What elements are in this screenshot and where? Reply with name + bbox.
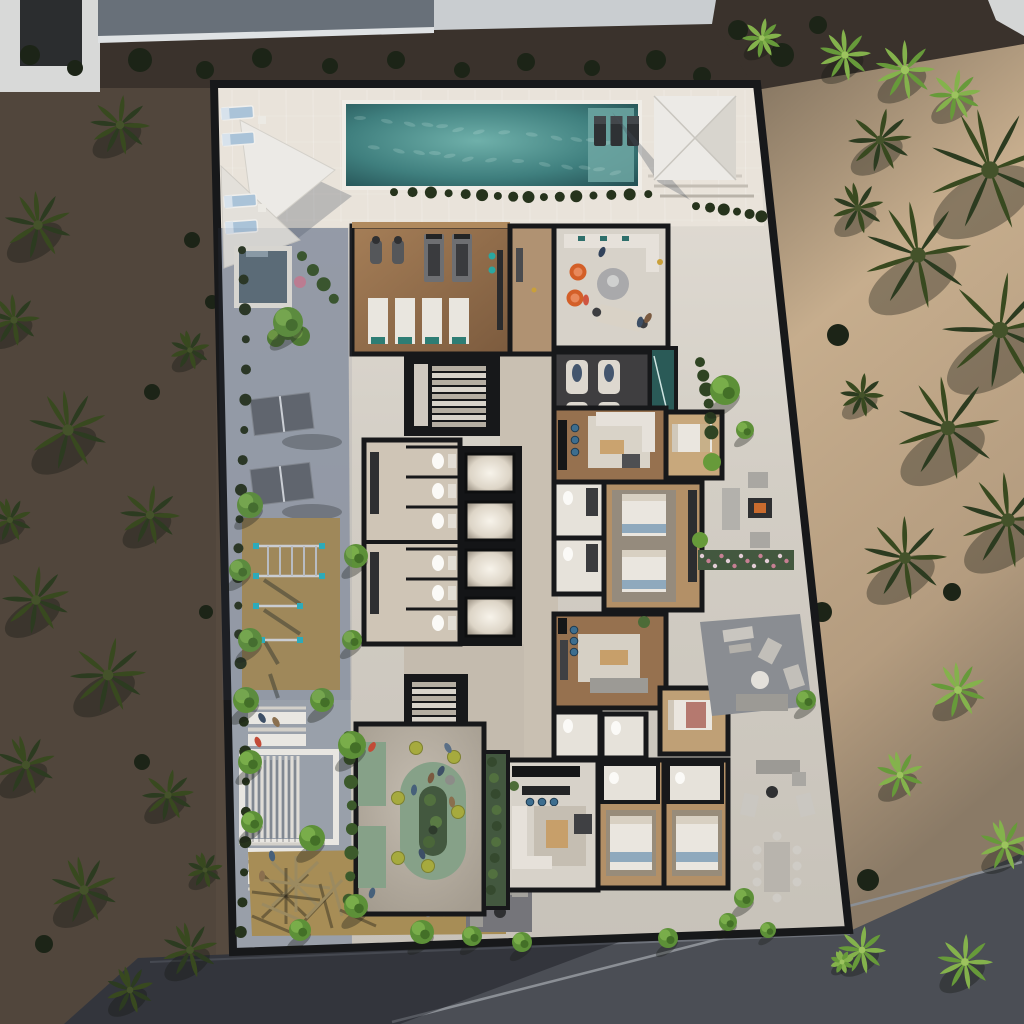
tree-shade-side [354,554,364,564]
flower [765,559,769,563]
corridor-upper [500,350,558,448]
tree-shade-side [667,936,675,944]
bed-headboard [610,816,652,824]
cushion [600,236,607,241]
elevator-car [466,454,514,492]
flower [732,564,736,568]
hedge-shrub [461,189,471,199]
palm-crown [7,517,13,523]
apt1-armchair [622,454,640,468]
palm-crown [186,946,194,954]
outdoor-sofa [722,488,740,530]
bush [134,754,150,770]
hedge-shrub [408,187,418,197]
fire-glow [754,503,766,513]
mat-block [425,337,439,344]
mirror-wall [497,250,503,330]
apt3-coffee-table [546,820,568,848]
palm-crown [187,347,193,353]
tree-shade-side [744,428,751,435]
palm-crown [1001,841,1008,848]
palm-crown [981,161,998,178]
lounger-headrest [224,195,233,208]
mat-block [398,337,412,344]
person-on-recliner [572,364,582,382]
toilet [432,585,444,601]
palm-crown [910,247,925,262]
dining-chair [753,878,762,887]
bar-stool [571,424,579,432]
lounger-backrest [594,116,606,124]
paved-lounge-terrace [700,614,812,716]
bar-stool [571,448,579,456]
bush [517,53,535,71]
bed-twin-2 [622,550,666,592]
hedge-shrub [508,192,518,202]
lounger-headrest [221,107,230,120]
hedge-shrub [555,192,565,202]
planting-tuft [424,794,436,806]
bush [809,16,827,34]
tree-shade-side [250,820,259,829]
floor-lamp [657,259,663,265]
flower [771,564,775,568]
side-table [258,116,266,124]
stair-step [432,366,486,371]
bed-headboard [676,816,718,824]
toilet [611,721,621,735]
planter [489,267,496,274]
hedge-shrub [692,202,700,210]
bed-twin-1 [622,494,666,536]
bar-stool [538,798,546,806]
apt1-kitchen-stools [571,424,579,456]
elevator-car [466,598,514,636]
ambient-shade-west [218,228,352,700]
stair-core-a [404,356,500,436]
bench [516,248,523,282]
shrub-tuft [492,821,502,831]
palm-crown [992,322,1008,338]
hedge-shrub [425,187,437,199]
toilet [563,491,573,505]
toilet [432,555,444,571]
bush [67,60,83,76]
apt3-sofa [512,806,527,862]
person-on-recliner [604,364,614,382]
palm-crown [31,595,41,605]
shrub-tuft [486,885,496,895]
bed-headboard [622,550,666,557]
palm-crown [941,421,956,436]
stair-step [432,387,486,392]
hedge-shrub [705,203,715,213]
lime-pouf [392,852,405,865]
apartment-upper [554,408,722,610]
apt2-sofa [590,678,648,693]
palm-crown [127,987,134,994]
lime-pouf [392,792,405,805]
suite-1 [598,760,664,888]
palm-crown [22,761,30,769]
palm-crown [951,91,958,98]
bed-headboard [622,494,666,501]
toilet [432,615,444,631]
palm-crown [116,121,124,129]
bed-headboard [672,424,678,452]
palm-crown [10,316,17,323]
tree-shade-side [723,387,735,399]
stair-step [432,394,486,399]
tree-shade-side [354,904,364,914]
apt3-kitchen-stools [526,798,558,806]
bathroom-d [602,714,646,758]
palm-crown [202,867,207,872]
lime-pouf [422,860,435,873]
potted-palm [703,453,721,471]
dining-chair [773,832,782,841]
table-plant [607,275,619,287]
shower [586,488,598,516]
orange-chair-seat [571,294,580,303]
apt3-armchair [574,814,592,834]
elevator-car [466,502,514,540]
stair-steps [432,366,486,427]
person [583,295,589,306]
palm-crown [79,885,89,895]
hedge-shrub [624,188,636,200]
bush [35,935,53,953]
planting-tuft [423,836,435,848]
palm-crown [62,424,73,435]
shrub-tuft [491,837,501,847]
bush [184,232,200,248]
coffee-table [766,786,778,798]
outdoor-armchair [748,472,768,488]
bed-runner [610,852,652,862]
bush [943,583,961,601]
toilet [609,772,619,784]
bike-console [394,236,402,244]
shrub-tuft [487,757,497,767]
flower [739,554,743,558]
bathroom-c [554,712,600,758]
hedge-shrub [445,189,453,197]
water-sparkle [354,116,366,120]
potted-palm [692,532,708,548]
palm-crown [146,511,154,519]
bed-runner [622,580,666,589]
suite1-bath [602,764,658,802]
tree-shade-side [420,930,430,940]
hedge-shrub [695,357,705,367]
hedge-shrub [755,210,767,222]
toilet [563,547,573,561]
palm-crown [897,772,904,779]
lime-pouf [452,806,465,819]
palm-crown [961,958,969,966]
cushion [578,236,585,241]
toilet [675,772,685,784]
hedge-shrub [697,370,709,382]
apt2-coffee-table [600,650,628,665]
bike-console [372,236,380,244]
mat-block [452,337,466,344]
hedge-shrub [522,191,534,203]
suite-2 [664,760,728,888]
palm-crown [899,552,911,564]
hedge-shrub [745,209,755,219]
apt2-tv-unit [560,640,568,680]
stair-step [412,710,456,715]
outdoor-sofa [756,760,800,774]
bar-stool [570,626,578,634]
tree-shade-side [248,760,258,770]
cushion [622,236,629,241]
cistern [448,454,456,468]
bed-rose [668,700,712,730]
palm-crown [33,220,43,230]
stair-step [432,422,486,427]
dining-chair [793,862,802,871]
cistern [448,586,456,600]
hedge-shrub [733,208,741,216]
dining-chair [773,894,782,903]
tree-shade-side [767,928,773,934]
tree-shade-side [310,835,320,845]
bush [144,384,160,400]
lounger-backrest [627,116,639,124]
shrub-tuft [491,789,501,799]
flower [745,559,749,563]
palm-crown [1001,513,1014,526]
bush [857,869,879,891]
lime-pouf [410,742,423,755]
apt1-coffee-table [600,440,624,454]
hedge-shrub [704,425,718,439]
orange-chair-seat [574,268,583,277]
palm-crown [103,670,114,681]
bar-stool [526,798,534,806]
bush [584,60,600,76]
palm-crown [759,35,765,41]
dining-table [764,842,790,892]
apt3-kitchen-counter [512,766,580,777]
hedge-shrub [570,190,582,202]
tree-shade-side [471,934,479,942]
palm-crown [954,686,962,694]
toilet [432,513,444,529]
changing-rooms [364,440,460,644]
elevator-bank [458,446,522,646]
apt2-kitchen-counter [558,618,567,634]
bar-stool [550,798,558,806]
cistern [448,484,456,498]
stair-step [412,696,456,701]
tree-shade-side [298,928,307,937]
bed-runner [676,852,718,862]
flower [706,559,710,563]
gray-pouf [445,775,455,785]
palm-crown [854,204,861,211]
planter [489,253,496,260]
sun-lounger [224,194,257,208]
stair-step [412,717,456,722]
dining-chair [793,878,802,887]
shrub-tuft [490,853,500,863]
cistern [448,556,456,570]
tree-shade-side [743,896,751,904]
elevator-car [466,550,514,588]
outdoor-armchair [792,772,806,786]
vanity-counter [370,452,379,514]
palm-crown [859,947,866,954]
apt1-sofa-chaise [642,412,655,452]
stair-step [412,682,456,687]
outdoor-sofa [736,694,788,711]
outdoor-armchair [750,532,770,548]
bar-stool [570,637,578,645]
hedge-shrub [347,800,357,810]
treadmill-belt [456,244,468,276]
dark-pouf [429,826,438,835]
toilet [432,483,444,499]
cistern [448,616,456,630]
bed-headboard [668,700,674,730]
tree-shade-side [805,698,813,706]
palm-crown [840,960,845,965]
gym-top-beam [352,222,510,228]
flower [778,554,782,558]
palm-crown [859,392,865,398]
sage-bench-lower [358,826,386,888]
palm-crown [876,136,885,145]
cistern [448,514,456,528]
lounger-headrest [222,133,231,146]
hedge-shrub [606,190,616,200]
bed-throw [686,702,706,728]
aerial-render [0,0,1024,1024]
sun-lounger [221,106,254,120]
tree-shade-side [350,742,361,753]
lounge-sofa-arm [646,234,659,272]
stair-step [432,373,486,378]
treadmill-console [454,234,470,239]
hedge-shrub [237,897,247,907]
bush [128,48,152,72]
hedge-shrub [390,188,398,196]
hedge-shrub [235,926,247,938]
suite2-bath [668,764,722,802]
lobby-lounge [554,226,668,348]
sun-lounger [222,132,255,146]
hedge-shrub [494,192,502,200]
stair-step [432,401,486,406]
treadmill-console [426,234,442,239]
hedge-shrub [346,823,358,835]
hedge-shrub [345,871,355,881]
courtyard [356,724,484,914]
gym [352,222,510,354]
stair-step [432,415,486,420]
apartment-lower [506,760,728,890]
stair-landing [414,364,428,426]
dining-chair [753,846,762,855]
bush [454,62,470,78]
treadmill-belt [428,244,440,276]
palm-crown [841,51,848,58]
shrub-tuft [489,773,499,783]
apt3-island [522,786,570,795]
side-table [258,204,266,212]
palm-crown [901,66,909,74]
dining-chair [753,862,762,871]
vanity-counter [370,552,379,614]
bush [322,58,338,74]
apt3-sofa-corner [512,856,552,869]
bush [252,48,272,68]
tree-shade-side [727,920,734,927]
shower [586,544,598,572]
flower [726,559,730,563]
vestibule [510,226,554,354]
mat-block [371,337,385,344]
bush [827,324,849,346]
bush [20,45,40,65]
toilet [432,453,444,469]
hedge-shrub [344,846,358,860]
flower [752,564,756,568]
bar-stool [570,648,578,656]
stair-step [432,408,486,413]
apt1-kitchen-counter [558,420,567,470]
dining-chair [793,846,802,855]
pendant-light [532,288,537,293]
hedge-shrub [540,193,548,201]
scene-canvas [0,0,1024,1024]
hedge-shrub [644,190,652,198]
flower [700,554,704,558]
bar-stool [571,436,579,444]
hedge-shrub [589,192,597,200]
bed-runner [622,524,666,533]
bush [646,50,666,70]
apt1-sofa [596,412,650,426]
flower [719,554,723,558]
stair-step [412,689,456,694]
flower [713,564,717,568]
plant [638,616,650,628]
bush [199,605,213,619]
shrub-tuft [492,805,502,815]
apt2-kitchen-stools [570,626,578,656]
hedge-shrub [344,775,358,789]
tree-shade-side [521,940,529,948]
bush [387,51,405,69]
hedge-shrub [476,189,488,201]
flower [758,554,762,558]
stair-step [432,380,486,385]
hedge-shrub [718,203,730,215]
plant [509,781,519,791]
bush [196,61,214,79]
palm-crown [164,791,171,798]
hedge-shrub [240,868,248,876]
stair-step [412,703,456,708]
toilet [563,719,573,733]
round-table [751,671,769,689]
flower [784,559,788,563]
